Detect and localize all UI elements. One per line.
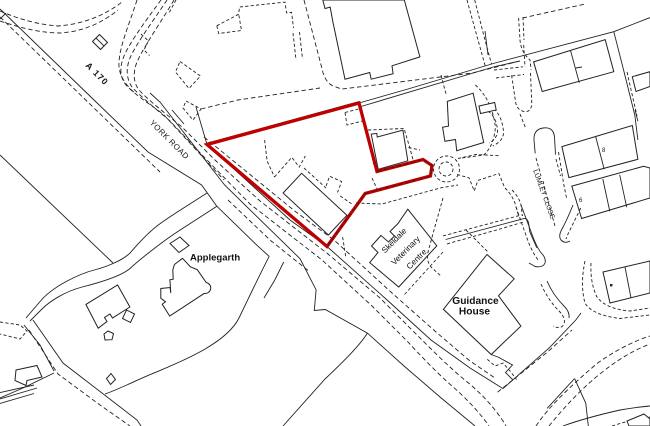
svg-text:House: House bbox=[459, 307, 490, 318]
svg-text:Applegarth: Applegarth bbox=[190, 253, 240, 264]
svg-text:Guidance: Guidance bbox=[452, 296, 499, 307]
